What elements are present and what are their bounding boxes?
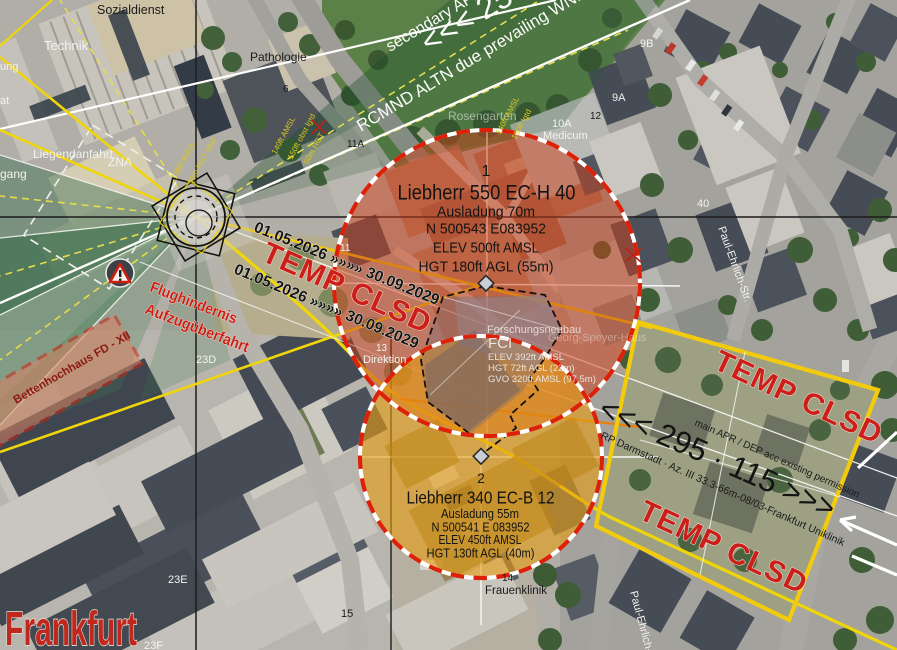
svg-text:Medicum: Medicum [543, 130, 588, 142]
svg-text:Pathologie: Pathologie [250, 50, 307, 64]
svg-text:23E: 23E [168, 574, 188, 586]
svg-text:14: 14 [502, 573, 514, 584]
svg-text:ZNA: ZNA [108, 155, 132, 169]
svg-text:10A: 10A [552, 118, 572, 130]
svg-text:gang: gang [0, 167, 27, 181]
svg-text:Sozialdienst: Sozialdienst [97, 3, 165, 17]
svg-text:ELEV 500ft AMSL: ELEV 500ft AMSL [433, 240, 539, 257]
svg-text:6: 6 [283, 84, 289, 95]
svg-text:13: 13 [376, 343, 388, 354]
svg-text:23F: 23F [144, 640, 163, 650]
svg-text:23D: 23D [196, 354, 216, 366]
svg-text:12: 12 [590, 111, 602, 122]
svg-text:9A: 9A [612, 92, 626, 104]
svg-text:FCI: FCI [488, 335, 512, 352]
svg-text:11A: 11A [347, 139, 364, 150]
svg-text:HGT 130ft AGL (40m): HGT 130ft AGL (40m) [427, 546, 535, 561]
svg-text:2: 2 [477, 471, 485, 486]
svg-text:GVO 320ft AMSL (97.5m): GVO 320ft AMSL (97.5m) [488, 374, 596, 385]
svg-text:ELEV 392ft AMSL: ELEV 392ft AMSL [488, 352, 564, 363]
svg-text:Ausladung 70m: Ausladung 70m [437, 204, 535, 221]
svg-text:HGT 180ft AGL (55m): HGT 180ft AGL (55m) [419, 259, 554, 276]
svg-text:N 500543 E083952: N 500543 E083952 [426, 221, 546, 238]
svg-text:Frauenklinik: Frauenklinik [485, 585, 547, 597]
svg-text:Georg-Speyer-Haus: Georg-Speyer-Haus [548, 332, 647, 344]
svg-text:Liebherr 550 EC-H 40: Liebherr 550 EC-H 40 [398, 181, 576, 205]
svg-text:11: 11 [340, 243, 351, 254]
svg-text:Direktion: Direktion [363, 354, 406, 366]
svg-text:Frankfurt: Frankfurt [5, 603, 137, 650]
svg-text:Liebherr 340 EC-B 12: Liebherr 340 EC-B 12 [407, 488, 555, 508]
svg-text:HGT 72ft AGL (22m): HGT 72ft AGL (22m) [488, 363, 575, 374]
svg-text:40: 40 [697, 198, 709, 210]
svg-text:1: 1 [482, 163, 491, 180]
svg-text:Liegendanfahrt: Liegendanfahrt [33, 147, 114, 161]
svg-text:at: at [0, 95, 9, 107]
svg-text:9B: 9B [640, 38, 653, 50]
svg-text:15: 15 [341, 608, 353, 620]
svg-text:ung: ung [0, 61, 18, 73]
svg-text:Technik: Technik [44, 38, 89, 53]
